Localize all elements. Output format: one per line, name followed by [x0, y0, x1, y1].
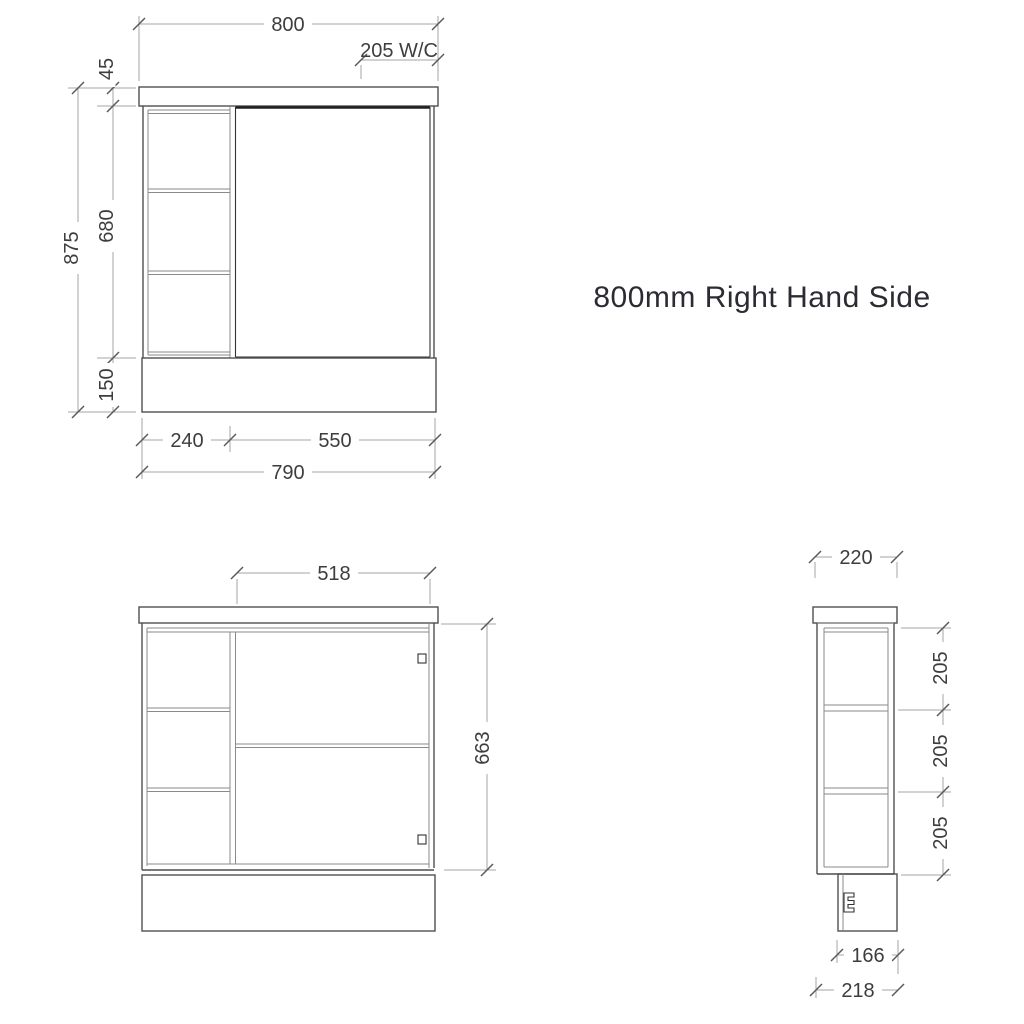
drawing-svg: 800 205 W/C 45 680 150 875 240 550	[0, 0, 1024, 1024]
internal-dimension-lines	[237, 573, 496, 870]
front-view: 800 205 W/C 45 680 150 875 240 550	[61, 14, 444, 484]
internal-kickboard	[142, 875, 435, 931]
front-benchtop	[139, 87, 438, 106]
internal-shelf-column	[147, 632, 236, 864]
vanity-drawing-page: 800 205 W/C 45 680 150 875 240 550	[0, 0, 1024, 1024]
internal-middle-shelf	[236, 744, 430, 748]
dim-wc-offset: 205 W/C	[360, 40, 438, 62]
dim-top-width: 800	[271, 14, 304, 36]
dim-carcass-height: 680	[96, 209, 118, 242]
internal-dimension-labels: 518 663	[310, 563, 494, 774]
front-dimension-lines	[68, 16, 438, 479]
internal-dimension-ticks	[231, 567, 493, 876]
dim-kickboard-height: 150	[96, 368, 118, 401]
internal-benchtop	[139, 607, 438, 623]
hinge-top-icon	[418, 654, 426, 663]
kickboard-clip-icon	[844, 893, 854, 912]
dim-door-width: 550	[318, 430, 351, 452]
dim-depth: 220	[839, 547, 872, 569]
side-benchtop	[813, 607, 897, 623]
side-kickboard	[838, 874, 897, 931]
dim-kickboard-recess-width: 166	[851, 945, 884, 967]
side-view: 220 205 205 205 166 218	[809, 547, 952, 1002]
internal-view: 518 663	[139, 563, 496, 931]
front-carcass-outline	[143, 106, 434, 358]
side-dimension-labels: 220 205 205 205 166 218	[832, 547, 952, 1002]
internal-carcass-outline	[142, 623, 434, 870]
dim-internal-height: 663	[472, 731, 494, 764]
dim-benchtop-height: 45	[96, 58, 118, 80]
hinge-bottom-icon	[418, 835, 426, 844]
side-dimension-ticks	[809, 551, 949, 996]
front-kickboard	[142, 358, 436, 412]
front-shelf-column	[148, 106, 230, 358]
dim-carcass-width: 790	[271, 462, 304, 484]
dim-opening-width: 518	[317, 563, 350, 585]
dim-overall-height: 875	[61, 231, 83, 264]
dim-shelf-gap-top: 205	[930, 651, 952, 684]
dim-shelf-gap-middle: 205	[930, 734, 952, 767]
dim-shelf-column-width: 240	[170, 430, 203, 452]
side-shelf-lines	[824, 705, 888, 794]
dim-shelf-gap-bottom: 205	[930, 816, 952, 849]
side-carcass-outline	[817, 623, 894, 874]
front-door-panel	[236, 107, 431, 357]
page-title: 800mm Right Hand Side	[593, 281, 930, 314]
dim-base-depth: 218	[841, 980, 874, 1002]
